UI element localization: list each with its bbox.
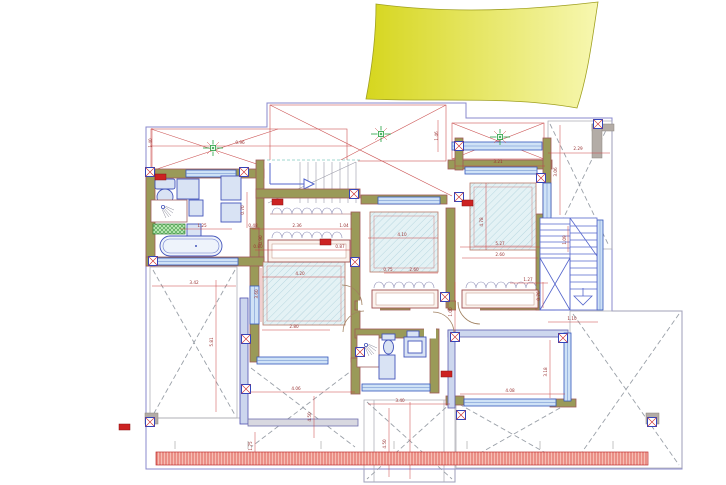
dimension-label: 3.60 [254,289,259,299]
dimension-label: 4.10 [397,232,407,237]
dimension-label: 0.96 [235,140,245,145]
ceiling-light-icon [371,126,391,142]
red-revision-tag [119,424,130,430]
wall-connector-icon [537,174,546,183]
dimension-label: 4.50 [307,412,312,422]
dimension-label: 4.50 [382,439,387,449]
dimension-label: 4.06 [291,386,301,391]
dimension-label: 3.18 [543,367,548,377]
dimension-label: 2.29 [573,146,583,151]
dimension-label: 1.27 [523,277,533,282]
floor-plan-canvas: 1.400.961.463.212.293.064.785.272.601.27… [0,0,726,485]
wall-connector-icon [149,257,158,266]
dimension-label: 1.10 [567,316,577,321]
red-revision-tag [155,174,166,180]
bed-middle [370,212,438,272]
louver-strip [156,441,648,465]
wall-connector-icon [242,335,251,344]
red-revision-tag [320,239,331,245]
dimension-label: 2.60 [495,252,505,257]
dimension-label: 2.36 [292,223,302,228]
dimension-label: 1.00 [448,307,453,317]
bathroom-top-left [151,176,241,256]
wall-connector-icon [146,418,155,427]
dimension-label: 3.40 [395,398,405,403]
dimension-label: 1.04 [339,223,349,228]
wall-connector-icon [457,411,466,420]
wall-connector-icon [350,190,359,199]
dimension-label: 1.46 [434,131,439,141]
dimension-label: 0.75 [383,267,393,272]
red-revision-tag [441,371,452,377]
toilet-icon [382,334,395,340]
dimension-label: 5.81 [209,337,214,347]
wall-connector-icon [240,168,249,177]
dimension-label: 3.06 [553,167,558,177]
bathtub-icon [160,236,222,256]
wall-connector-icon [356,348,365,357]
yellow-canopy [366,2,598,108]
dimension-label: 4.20 [295,271,305,276]
dimension-label: 0.48 [248,223,258,228]
toilet-icon [155,179,175,189]
dimension-label: 1.09 [562,235,567,245]
wall-connector-icon [594,120,603,129]
red-revision-tag [462,200,473,206]
dimension-label: 4.78 [479,217,484,227]
dimension-label: 4.08 [505,388,515,393]
wall-connector-icon [146,168,155,177]
red-revision-tag [272,199,283,205]
dimension-label: 0.76 [536,291,541,301]
wall-connector-icon [441,293,450,302]
bathroom-lower [357,331,426,379]
dimension-label: 0.80 [253,244,263,249]
dimension-label: 0.87 [335,244,345,249]
staircase-secondary [540,218,597,310]
wall-connector-icon [648,418,657,427]
bed-right [470,183,536,250]
wall-connector-icon [559,334,568,343]
wall-connector-icon [455,142,464,151]
dimension-label: 1.25 [197,223,207,228]
dimension-label: 2.80 [289,324,299,329]
wall-connector-icon [351,258,360,267]
floor-plan-drawing: 1.400.961.463.212.293.064.785.272.601.27… [0,0,726,485]
dimension-label: 1.75 [248,441,253,451]
dimension-label: 0.70 [240,205,245,215]
wardrobe-hangers-icon [272,208,342,214]
dimension-label: 2.60 [409,267,419,272]
dimension-label: 3.21 [493,159,503,164]
shower-stall [151,200,187,222]
dimension-label: 3.42 [189,280,199,285]
dimension-label: 5.27 [495,241,505,246]
wall-connector-icon [451,333,460,342]
wall-connector-icon [242,385,251,394]
ceiling-light-icon [203,140,223,156]
dimension-label: 1.40 [148,138,153,148]
